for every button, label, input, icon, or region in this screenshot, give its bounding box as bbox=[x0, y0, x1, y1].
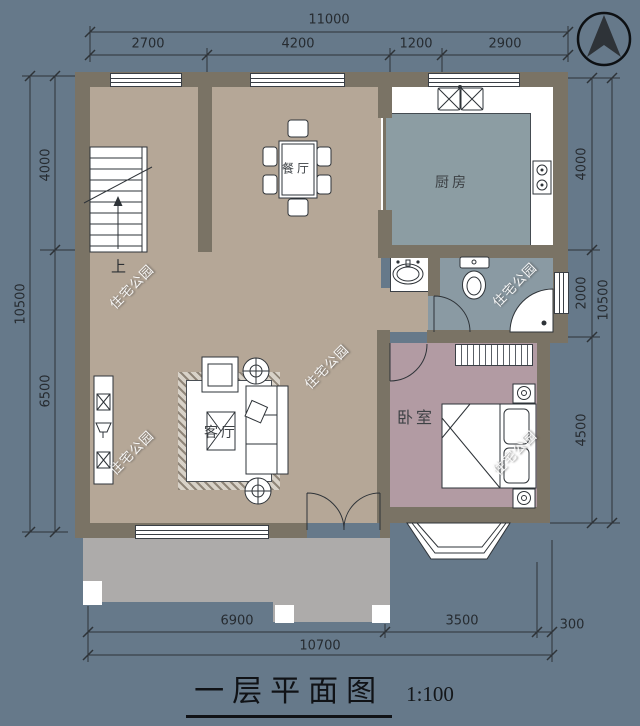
window-living bbox=[135, 525, 269, 539]
dim-bottom-seg: 3500 bbox=[445, 614, 478, 629]
porch-left bbox=[83, 538, 273, 602]
kitchen-sliding-door bbox=[383, 118, 386, 210]
wardrobe-icon bbox=[455, 344, 533, 366]
wall-bedroom-top bbox=[427, 330, 550, 343]
vestibule-floor bbox=[378, 288, 430, 332]
wall-bottom-stub bbox=[380, 523, 390, 538]
wall-kitchen-left-top bbox=[378, 87, 392, 118]
bay-window bbox=[407, 523, 510, 559]
wall-right-bedroom bbox=[537, 330, 550, 523]
porch-column bbox=[372, 605, 390, 623]
porch-column bbox=[275, 605, 294, 623]
dim-top-seg: 1200 bbox=[399, 37, 432, 52]
basin-niche bbox=[390, 256, 430, 292]
dim-right-seg: 2000 bbox=[575, 276, 590, 309]
porch-column bbox=[83, 581, 102, 605]
dim-right-seg: 4500 bbox=[575, 413, 590, 446]
dim-left-seg: 4000 bbox=[39, 148, 54, 181]
dim-top-seg: 2700 bbox=[131, 37, 164, 52]
dim-top-total: 11000 bbox=[308, 13, 349, 28]
dim-bottom-seg: 300 bbox=[560, 618, 585, 633]
wall-bedroom-bottom bbox=[377, 507, 550, 523]
label-kitchen: 厨房 bbox=[435, 172, 469, 192]
dim-right-seg: 4000 bbox=[575, 147, 590, 180]
north-arrow-icon bbox=[578, 13, 630, 65]
label-dining: 餐厅 bbox=[282, 160, 312, 177]
dim-top-seg: 4200 bbox=[281, 37, 314, 52]
dim-right-total: 10500 bbox=[597, 279, 612, 320]
wall-right-step bbox=[550, 330, 568, 343]
title-bar: 一层平面图 1:100 bbox=[0, 666, 640, 720]
wall-bedroom-left bbox=[377, 330, 390, 507]
wall-left bbox=[75, 87, 90, 538]
dim-bottom-total: 10700 bbox=[299, 639, 340, 654]
window-stairwell bbox=[110, 73, 182, 87]
dim-left-total: 10500 bbox=[14, 283, 29, 324]
title-scale: 1:100 bbox=[406, 682, 454, 707]
page-title: 一层平面图 bbox=[186, 666, 392, 718]
wall-stairwell bbox=[198, 87, 212, 252]
wall-bath-stub bbox=[428, 256, 440, 296]
dim-bottom-seg: 6900 bbox=[220, 614, 253, 629]
window-bathroom bbox=[554, 272, 569, 314]
label-living: 客厅 bbox=[204, 422, 238, 442]
dim-top-seg: 2900 bbox=[488, 37, 521, 52]
wall-kitchen-bottom bbox=[378, 245, 554, 258]
label-bedroom: 卧室 bbox=[397, 404, 435, 428]
dim-left-seg: 6500 bbox=[39, 374, 54, 407]
window-kitchen bbox=[428, 73, 520, 87]
floor-plan-canvas: 餐厅 厨房 客厅 卧室 上 住宅公园 住宅公园 住宅公园 住宅公园 住宅公园 1… bbox=[0, 0, 640, 726]
window-dining bbox=[250, 73, 345, 87]
label-stairs-up: 上 bbox=[111, 256, 129, 277]
